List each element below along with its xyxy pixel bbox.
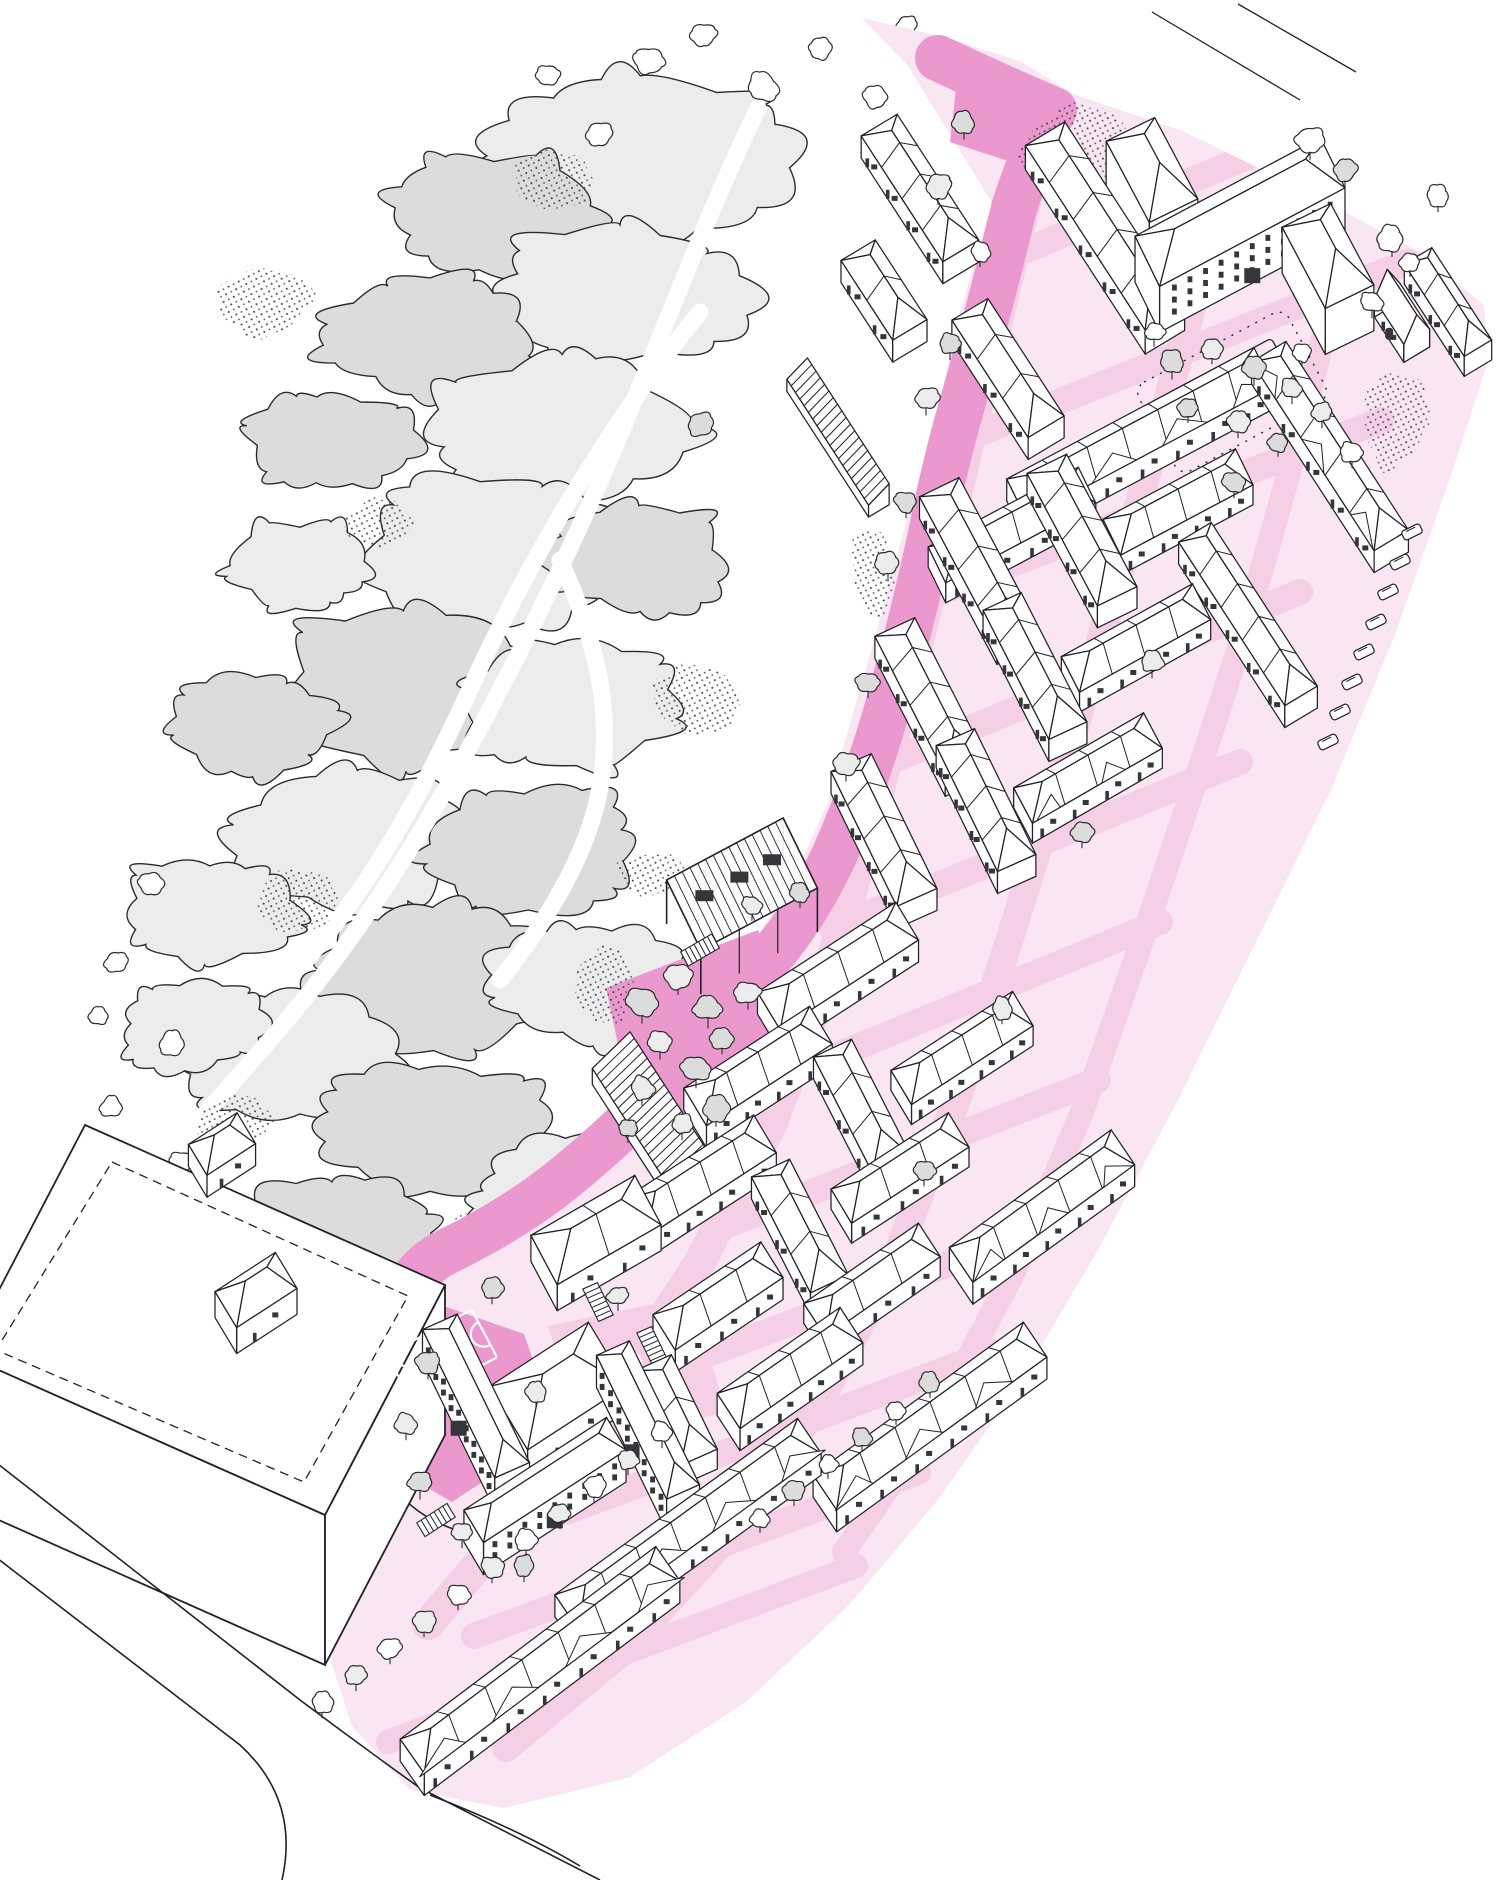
unit-door — [1073, 810, 1077, 819]
unit-door — [506, 1723, 510, 1732]
unit-window — [1232, 637, 1238, 642]
unit-window — [771, 1496, 777, 1501]
unit-window — [901, 701, 907, 706]
unit-door — [962, 594, 966, 603]
tree-canopy — [447, 1585, 471, 1605]
unit-door — [985, 862, 989, 871]
unit-window — [1187, 440, 1193, 445]
unit-window — [1130, 670, 1136, 675]
facade-window — [487, 1483, 492, 1489]
unit-window — [786, 1080, 792, 1085]
facade-window — [659, 1494, 664, 1500]
unit-door — [1306, 462, 1310, 471]
unit-door — [808, 1071, 812, 1080]
unit-window — [1110, 289, 1116, 294]
unit-door — [726, 1534, 730, 1543]
unit-window — [989, 1060, 995, 1065]
unit-window — [1019, 1040, 1025, 1045]
unit-window — [729, 1190, 735, 1195]
unit-window — [1116, 477, 1122, 482]
facade-window — [625, 1425, 630, 1431]
facade-window — [456, 1410, 461, 1416]
unit-door — [986, 1413, 990, 1422]
unit-window — [518, 1709, 524, 1714]
facade-window — [471, 1441, 476, 1447]
unit-window — [1088, 602, 1094, 607]
facade-window — [1265, 247, 1270, 253]
unit-door — [1428, 315, 1432, 324]
unit-window — [928, 1100, 934, 1105]
unit-window — [1210, 604, 1216, 609]
unit-door — [986, 633, 990, 642]
unit-window — [855, 294, 861, 299]
unit-door — [924, 521, 928, 530]
facade-window — [617, 1407, 622, 1413]
unit-window — [943, 774, 949, 779]
facade-window — [493, 1541, 498, 1547]
unit-window — [1007, 672, 1013, 677]
unit-window — [1024, 704, 1030, 709]
unit-window — [761, 1210, 767, 1215]
unit-door — [719, 1202, 723, 1211]
unit-door — [886, 190, 890, 199]
unit-window — [695, 1343, 701, 1348]
unit-door — [949, 1090, 953, 1099]
unit-window — [1205, 516, 1211, 521]
facade-window — [433, 1374, 438, 1380]
unit-door — [857, 1159, 861, 1168]
unit-window — [834, 1001, 840, 1006]
unit-window — [1055, 1228, 1061, 1233]
unit-door — [691, 1559, 695, 1568]
unit-door — [1186, 643, 1190, 652]
unit-window — [1042, 538, 1048, 543]
facade-window — [1265, 259, 1270, 265]
unit-window — [806, 1471, 812, 1476]
unit-window — [1313, 470, 1319, 475]
facade-window — [612, 1474, 617, 1480]
unit-window — [639, 1245, 645, 1250]
tree-canopy — [875, 551, 899, 574]
unit-window — [1434, 322, 1440, 327]
unit-window — [965, 354, 971, 359]
tree-canopy — [451, 1524, 472, 1540]
unit-window — [883, 667, 889, 672]
unit-window — [991, 393, 997, 398]
tree-canopy — [1161, 350, 1184, 373]
facade-window — [1188, 276, 1193, 282]
facade-window — [582, 1494, 587, 1500]
unit-window — [926, 1451, 932, 1456]
facade-window — [441, 1390, 446, 1396]
facade-window — [1172, 297, 1177, 303]
unit-window — [1070, 569, 1076, 574]
unit-window — [1083, 800, 1089, 805]
facade-window — [471, 1452, 476, 1458]
unit-window — [1274, 702, 1280, 707]
facade-window — [449, 1405, 454, 1411]
unit-door — [579, 1668, 583, 1677]
unit-door — [845, 1515, 849, 1524]
unit-door — [1448, 346, 1452, 355]
unit-door — [1331, 499, 1335, 508]
unit-window — [627, 1627, 633, 1632]
unit-window — [1264, 394, 1270, 399]
unit-door — [862, 1227, 866, 1236]
unit-door — [970, 831, 974, 840]
unit-window — [961, 1425, 967, 1430]
unit-window — [849, 1359, 855, 1364]
unit-window — [1454, 353, 1460, 358]
facade-window — [1188, 288, 1193, 294]
facade-window — [522, 1522, 527, 1528]
facade-window — [1188, 300, 1193, 306]
unit-window — [1139, 552, 1145, 557]
unit-door — [1079, 245, 1083, 254]
unit-door — [1127, 319, 1131, 328]
unit-window — [996, 1400, 1002, 1405]
facade-window — [1203, 280, 1208, 286]
unit-window — [818, 1380, 824, 1385]
facade-window — [1219, 284, 1224, 290]
unit-door — [775, 1240, 779, 1249]
facade-window — [449, 1394, 454, 1400]
unit-window — [731, 1319, 737, 1324]
facade-window — [600, 1373, 605, 1379]
unit-window — [1040, 736, 1046, 741]
facade-window — [608, 1390, 613, 1396]
unit-door — [906, 221, 910, 230]
unit-window — [697, 1211, 703, 1216]
unit-door — [616, 1641, 620, 1650]
unit-door — [1228, 508, 1232, 517]
unit-door — [1013, 1265, 1017, 1274]
unit-window — [1016, 432, 1022, 437]
unit-door — [1036, 730, 1040, 739]
facade-window — [650, 1487, 655, 1493]
facade-window — [1203, 268, 1208, 274]
unit-door — [901, 1201, 905, 1210]
unit-door — [878, 660, 882, 669]
unit-window — [724, 1121, 730, 1126]
unit-window — [1414, 291, 1420, 296]
tree-canopy — [672, 1114, 693, 1134]
tree-canopy — [619, 1120, 638, 1136]
unit-door — [823, 1014, 827, 1023]
facade-window — [1219, 260, 1224, 266]
unit-window — [1004, 558, 1010, 563]
unit-window — [1289, 432, 1295, 437]
unit-door — [980, 1070, 984, 1079]
unit-door — [1204, 598, 1208, 607]
unit-window — [235, 1163, 241, 1168]
unit-window — [1053, 536, 1059, 541]
unit-window — [1038, 178, 1044, 183]
unit-door — [720, 1332, 724, 1341]
facade-window — [642, 1470, 647, 1476]
unit-door — [883, 896, 887, 905]
unit-window — [991, 639, 997, 644]
unit-door — [1105, 488, 1109, 497]
masterplan-svg — [0, 0, 1500, 1880]
entrance-door — [1244, 268, 1260, 283]
unit-door — [931, 763, 935, 772]
unit-window — [918, 736, 924, 741]
unit-window — [923, 1274, 929, 1279]
unit-window — [1338, 508, 1344, 513]
unit-window — [587, 1275, 593, 1280]
unit-window — [1163, 652, 1169, 657]
unit-door — [1257, 386, 1261, 395]
unit-door — [1103, 282, 1107, 291]
unit-door — [818, 1082, 822, 1091]
unit-window — [1134, 326, 1140, 331]
scatter-tree — [535, 66, 560, 85]
facade-window — [625, 1436, 630, 1442]
facade-window — [1250, 255, 1255, 261]
tree-canopy — [1427, 184, 1448, 207]
facade-window — [507, 1542, 512, 1548]
unit-window — [1152, 459, 1158, 464]
facade-window — [617, 1418, 622, 1424]
unit-window — [588, 1419, 594, 1424]
facade-window — [567, 1493, 572, 1499]
unit-door — [756, 1307, 760, 1316]
unit-door — [777, 1092, 781, 1101]
unit-window — [800, 1287, 806, 1292]
unit-window — [913, 1189, 919, 1194]
facade-window — [479, 1467, 484, 1473]
facade-window — [659, 1505, 664, 1511]
unit-window — [1115, 781, 1121, 786]
unit-window — [871, 164, 877, 169]
unit-window — [839, 801, 845, 806]
unit-door — [880, 1490, 884, 1499]
unit-door — [1030, 548, 1034, 557]
tree-canopy — [855, 673, 880, 691]
unit-door — [1141, 470, 1145, 479]
unit-window — [871, 869, 877, 874]
unit-door — [1066, 563, 1070, 572]
unit-window — [1050, 819, 1056, 824]
unit-window — [868, 979, 874, 984]
chapel-door — [1385, 328, 1393, 340]
unit-window — [1097, 688, 1103, 693]
unit-window — [885, 1301, 891, 1306]
unit-door — [847, 285, 851, 294]
facade-window — [441, 1379, 446, 1385]
unit-door — [1247, 663, 1251, 672]
unit-door — [756, 1202, 760, 1211]
unit-door — [939, 768, 943, 777]
unit-window — [974, 837, 980, 842]
unit-window — [1238, 499, 1244, 504]
unit-door — [1211, 432, 1215, 441]
pavilion-rooflight — [730, 872, 748, 883]
unit-window — [702, 1546, 708, 1551]
facade-window — [1172, 309, 1177, 315]
unit-window — [481, 1737, 487, 1742]
unit-window — [664, 1599, 670, 1604]
facade-window — [1250, 243, 1255, 249]
unit-window — [1023, 1252, 1029, 1257]
unit-door — [950, 1439, 954, 1448]
unit-window — [1062, 215, 1068, 220]
unit-door — [981, 1288, 985, 1297]
unit-door — [1183, 565, 1187, 574]
unit-door — [652, 1613, 656, 1622]
unit-door — [1048, 529, 1052, 538]
pavilion-rooflight — [763, 854, 781, 865]
unit-door — [809, 1392, 813, 1401]
unit-window — [843, 1129, 849, 1134]
unit-door — [1129, 561, 1133, 570]
unit-door — [1055, 209, 1059, 218]
unit-window — [445, 1764, 451, 1769]
facade-window — [507, 1531, 512, 1537]
facade-window — [1203, 292, 1208, 298]
unit-door — [1040, 829, 1044, 838]
pavilion-rooflight — [695, 890, 713, 901]
unit-window — [591, 1654, 597, 1659]
unit-window — [989, 868, 995, 873]
unit-door — [873, 1313, 877, 1322]
unit-window — [892, 196, 898, 201]
unit-window — [1086, 252, 1092, 257]
unit-window — [823, 1090, 829, 1095]
facade-window — [1234, 251, 1239, 257]
unit-window — [1172, 534, 1178, 539]
unit-window — [1088, 1205, 1094, 1210]
unit-door — [1226, 630, 1230, 639]
unit-door — [927, 253, 931, 262]
facade-window — [537, 1512, 542, 1518]
unit-window — [781, 1249, 787, 1254]
unit-door — [220, 1179, 224, 1188]
unit-window — [1258, 402, 1264, 407]
unit-door — [1282, 424, 1286, 433]
unit-door — [1120, 680, 1124, 689]
unit-door — [893, 969, 897, 978]
unit-window — [1253, 669, 1259, 674]
unit-door — [914, 729, 918, 738]
facade-window — [608, 1401, 613, 1407]
unit-door — [747, 1435, 751, 1444]
unit-window — [874, 1215, 880, 1220]
unit-window — [1120, 1181, 1126, 1186]
unit-door — [253, 1333, 257, 1342]
unit-door — [1138, 772, 1142, 781]
unit-door — [623, 1263, 627, 1272]
unit-window — [1148, 763, 1154, 768]
unit-door — [571, 1293, 575, 1302]
unit-door — [912, 1286, 916, 1295]
unit-window — [664, 1232, 670, 1237]
unit-door — [1381, 322, 1385, 331]
unit-door — [1009, 423, 1013, 432]
facade-window — [464, 1436, 469, 1442]
unit-window — [948, 565, 954, 570]
facade-window — [642, 1459, 647, 1465]
facade-window — [1234, 263, 1239, 269]
facade-window — [1172, 285, 1177, 291]
unit-door — [896, 694, 900, 703]
unit-window — [929, 528, 935, 533]
unit-door — [1105, 791, 1109, 800]
facade-window — [1265, 235, 1270, 241]
unit-window — [1362, 545, 1368, 550]
facade-window — [612, 1463, 617, 1469]
unit-door — [1409, 284, 1413, 293]
unit-door — [1019, 698, 1023, 707]
unit-door — [684, 1356, 688, 1365]
unit-window — [736, 1521, 742, 1526]
unit-window — [1035, 503, 1041, 508]
unit-window — [757, 1423, 763, 1428]
facade-window — [1234, 275, 1239, 281]
unit-door — [915, 1464, 919, 1473]
unit-window — [912, 227, 918, 232]
unit-window — [891, 1476, 897, 1481]
unit-door — [954, 800, 958, 809]
unit-door — [858, 991, 862, 1000]
unit-window — [1189, 571, 1195, 576]
unit-window — [903, 956, 909, 961]
unit-window — [880, 334, 886, 339]
unit-window — [958, 1080, 964, 1085]
unit-window — [968, 601, 974, 606]
unit-door — [1083, 596, 1087, 605]
unit-door — [1078, 1218, 1082, 1227]
unit-door — [1003, 665, 1007, 674]
unit-door — [1110, 1194, 1114, 1203]
unit-window — [856, 1502, 862, 1507]
unit-door — [834, 795, 838, 804]
masterplan-illustration — [0, 0, 1500, 1880]
unit-window — [932, 259, 938, 264]
unit-door — [1031, 172, 1035, 181]
facade-window — [650, 1476, 655, 1482]
unit-door — [840, 1371, 844, 1380]
unit-window — [855, 835, 861, 840]
entrance-door — [451, 1421, 467, 1436]
unit-window — [787, 1402, 793, 1407]
unit-window — [755, 1101, 761, 1106]
unit-door — [1176, 451, 1180, 460]
unit-door — [543, 1696, 547, 1705]
unit-door — [1021, 1388, 1025, 1397]
unit-door — [470, 1751, 474, 1760]
unit-door — [851, 828, 855, 837]
unit-door — [1045, 1241, 1049, 1250]
unit-door — [1010, 1050, 1014, 1059]
unit-door — [1268, 696, 1272, 705]
unit-door — [983, 384, 987, 393]
unit-window — [1196, 634, 1202, 639]
unit-door — [1162, 543, 1166, 552]
unit-window — [991, 1276, 997, 1281]
unit-window — [767, 1295, 773, 1300]
facade-window — [537, 1523, 542, 1529]
unit-door — [1030, 496, 1034, 505]
unit-door — [940, 1176, 944, 1185]
unit-door — [687, 1223, 691, 1232]
unit-door — [943, 557, 947, 566]
unit-door — [837, 1120, 841, 1129]
unit-door — [865, 158, 869, 167]
unit-door — [873, 325, 877, 334]
facade-window — [479, 1456, 484, 1462]
